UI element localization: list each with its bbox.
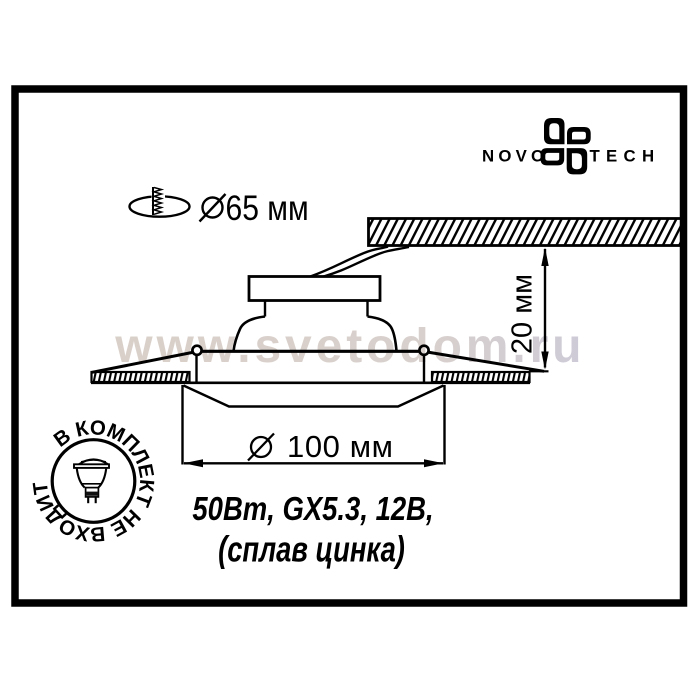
svg-text:TECH: TECH bbox=[590, 147, 661, 166]
svg-text:65 мм: 65 мм bbox=[225, 188, 308, 228]
svg-text:50Вm, GX5.3, 12В,: 50Вm, GX5.3, 12В, bbox=[192, 490, 433, 527]
svg-text:NOVO: NOVO bbox=[482, 147, 548, 166]
svg-text:(сплав цинка): (сплав цинка) bbox=[218, 529, 405, 570]
svg-text:100 мм: 100 мм bbox=[287, 429, 394, 464]
